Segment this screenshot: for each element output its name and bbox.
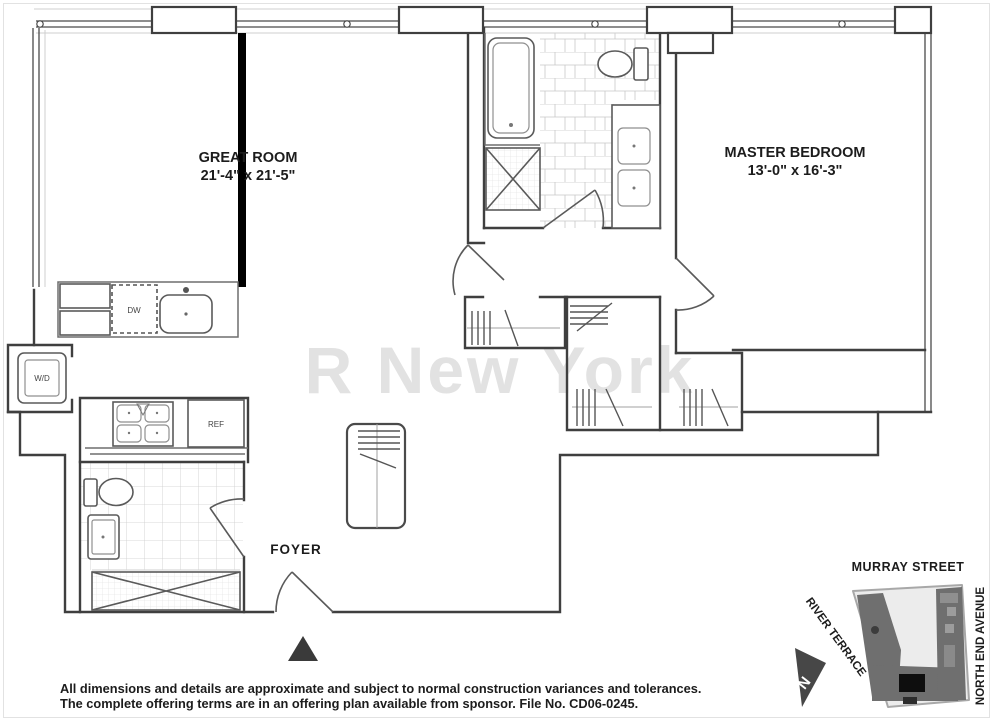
great-room-label: GREAT ROOM — [199, 150, 298, 166]
master-bedroom-dims: 13'-0" x 16'-3" — [748, 163, 843, 179]
map-detail-6 — [903, 697, 917, 704]
entry-arrow-icon — [288, 636, 318, 661]
toilet-bowl — [99, 479, 133, 506]
column-3-step — [668, 33, 713, 53]
map-detail-2 — [947, 607, 956, 616]
master-toilet-tank — [634, 48, 648, 80]
map-detail-5 — [871, 626, 879, 634]
foyer-closet — [347, 424, 405, 528]
floor-plan-drawing: R New York — [0, 0, 993, 721]
map-street-murray: MURRAY STREET — [852, 560, 965, 574]
column-4 — [895, 7, 931, 33]
greatroom-bath-divider — [468, 28, 484, 243]
foyer-label: FOYER — [270, 542, 322, 557]
map-unit-highlight — [899, 674, 925, 692]
master-vanity — [612, 105, 660, 228]
location-map: MURRAY STREET NORTH END AVENUE RIVER TER… — [794, 560, 987, 707]
refrigerator-label: REF — [208, 420, 224, 429]
map-street-north-end: NORTH END AVENUE — [975, 587, 987, 706]
kitchen: DW REF — [58, 282, 248, 454]
toilet-tank — [84, 479, 97, 506]
map-detail-3 — [945, 624, 954, 633]
east-window-wall — [925, 28, 931, 412]
doors — [276, 245, 714, 661]
column-3 — [647, 7, 732, 33]
watermark-text: R New York — [305, 333, 696, 407]
south-east-wall — [333, 412, 878, 612]
floor-plan-page: R New York — [0, 0, 993, 721]
north-arrow-icon: N — [794, 648, 826, 707]
sink-faucet — [183, 287, 189, 293]
master-toilet-bowl — [598, 51, 632, 77]
bathtub-drain — [509, 123, 513, 127]
bedroom-door — [676, 258, 714, 310]
cabinet-1 — [60, 284, 110, 308]
column-2 — [399, 7, 483, 33]
laundry-closet: W/D — [18, 353, 66, 403]
map-building-right-wing — [936, 587, 966, 701]
disclaimer-line-2: The complete offering terms are in an of… — [60, 696, 638, 711]
entry-door — [276, 572, 333, 612]
stove — [113, 402, 173, 446]
cabinet-2 — [60, 311, 110, 335]
kitchen-counter-lower-edge — [85, 448, 248, 454]
column-1 — [152, 7, 236, 33]
closet-b-rod-top — [570, 303, 612, 331]
dishwasher-label: DW — [127, 306, 141, 315]
bathroom-sink-drain — [102, 536, 105, 539]
disclaimer-line-1: All dimensions and details are approxima… — [60, 681, 701, 696]
master-bedroom-label: MASTER BEDROOM — [725, 145, 866, 161]
west-window-wall — [33, 28, 39, 287]
disclaimer: All dimensions and details are approxima… — [60, 681, 701, 711]
great-room-dims: 21'-4" x 21'-5" — [201, 168, 296, 184]
sink-drain — [184, 312, 187, 315]
map-detail-1 — [940, 593, 958, 603]
washer-dryer-label: W/D — [34, 374, 50, 383]
map-detail-4 — [944, 645, 955, 667]
hall-door — [453, 245, 504, 295]
